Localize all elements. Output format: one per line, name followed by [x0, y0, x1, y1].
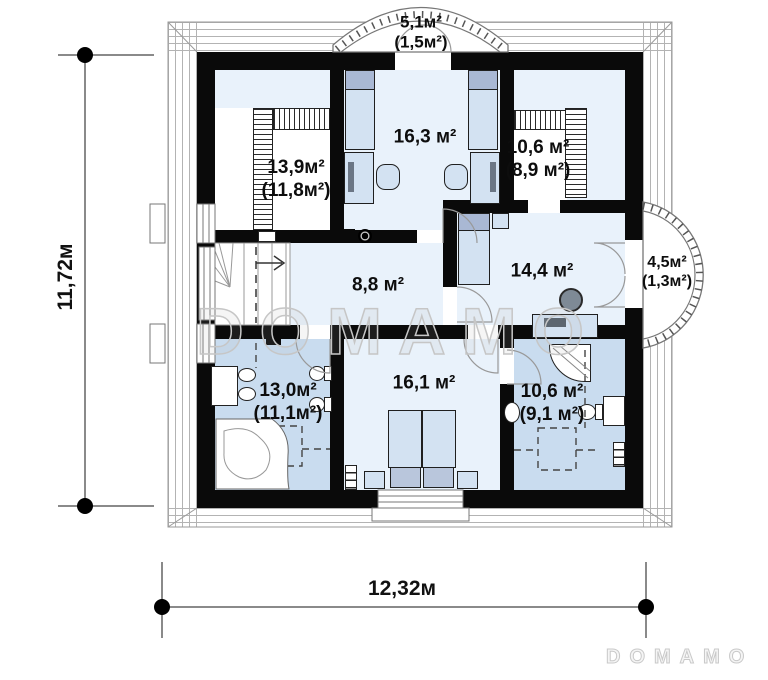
width-dimension-line: [162, 606, 646, 608]
door-swings: [296, 25, 625, 384]
windows: [150, 204, 469, 521]
room-area: 5,1м²: [400, 13, 442, 32]
room-area: 13,9м²: [267, 157, 324, 178]
room-label-bathroom-right: 10,6 м² (9,1 м²): [520, 381, 585, 427]
dimension-dot: [154, 599, 170, 615]
floor-plan-page: 5,1м² (1,5м²) 13,9м² (11,8м²) 16,3 м² 10…: [0, 0, 768, 680]
room-label-hall: 8,8 м²: [352, 275, 404, 298]
dimension-dot: [77, 498, 93, 514]
room-label-balcony-top: 5,1м² (1,5м²): [394, 13, 447, 54]
room-label-bedroom-top-left: 13,9м² (11,8м²): [262, 157, 331, 203]
room-area: 16,3 м²: [394, 127, 457, 148]
room-area: 16,1 м²: [393, 373, 456, 394]
height-dimension-line: [84, 55, 86, 506]
room-area: 13,0м²: [259, 380, 316, 401]
staircase: [215, 243, 290, 325]
dimension-dot: [77, 47, 93, 63]
height-dimension-label: 11,72м: [54, 244, 78, 311]
room-area: 4,5м²: [647, 254, 686, 271]
room-label-balcony-right: 4,5м² (1,3м²): [642, 253, 692, 291]
room-area: 10,6 м²: [521, 381, 584, 402]
room-area-reduced: (1,5м²): [394, 33, 447, 53]
dimension-dot: [638, 599, 654, 615]
room-area-reduced: (1,3м²): [642, 272, 692, 291]
bathtub-icon: [216, 419, 289, 489]
dimension-tick: [58, 505, 154, 507]
room-area-reduced: (11,1м²): [254, 403, 323, 426]
room-area-reduced: (11,8м²): [262, 180, 331, 203]
room-label-bedroom-bottom-center: 16,1 м²: [393, 373, 456, 396]
room-area: 10,6 м²: [507, 137, 570, 158]
room-area: 8,8 м²: [352, 275, 404, 296]
room-area-reduced: (9,1 м²): [520, 404, 585, 427]
room-label-bedroom-top-center: 16,3 м²: [394, 127, 457, 150]
room-area-reduced: (8,9 м²): [506, 160, 571, 183]
dimension-tick: [58, 54, 154, 56]
room-label-bedroom-middle-right: 14,4 м²: [511, 261, 574, 284]
width-dimension-label: 12,32м: [368, 577, 436, 601]
room-label-bathroom-left: 13,0м² (11,1м²): [254, 380, 323, 426]
room-area: 14,4 м²: [511, 261, 574, 282]
room-label-bedroom-top-right: 10,6 м² (8,9 м²): [506, 137, 571, 183]
